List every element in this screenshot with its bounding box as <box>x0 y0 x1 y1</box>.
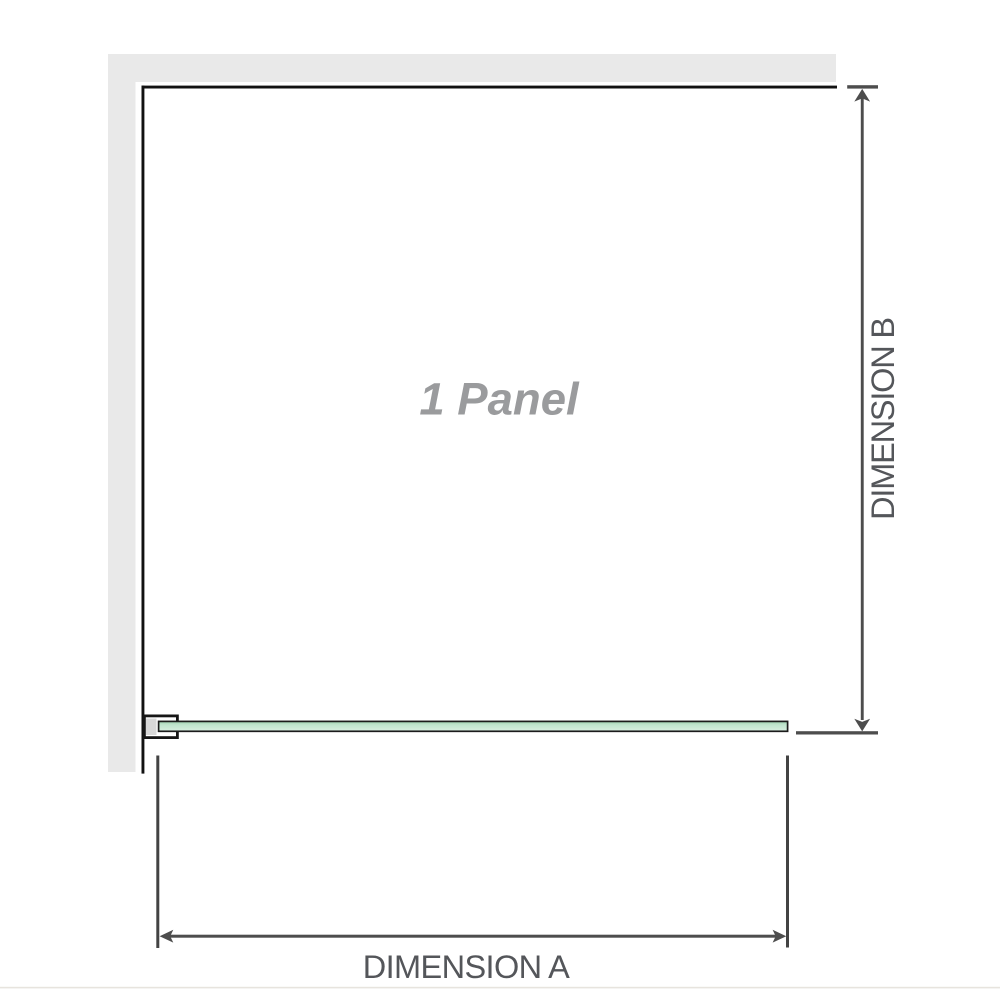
svg-text:DIMENSION B: DIMENSION B <box>865 318 901 520</box>
svg-text:DIMENSION A: DIMENSION A <box>363 949 570 985</box>
svg-text:1 Panel: 1 Panel <box>419 374 580 425</box>
